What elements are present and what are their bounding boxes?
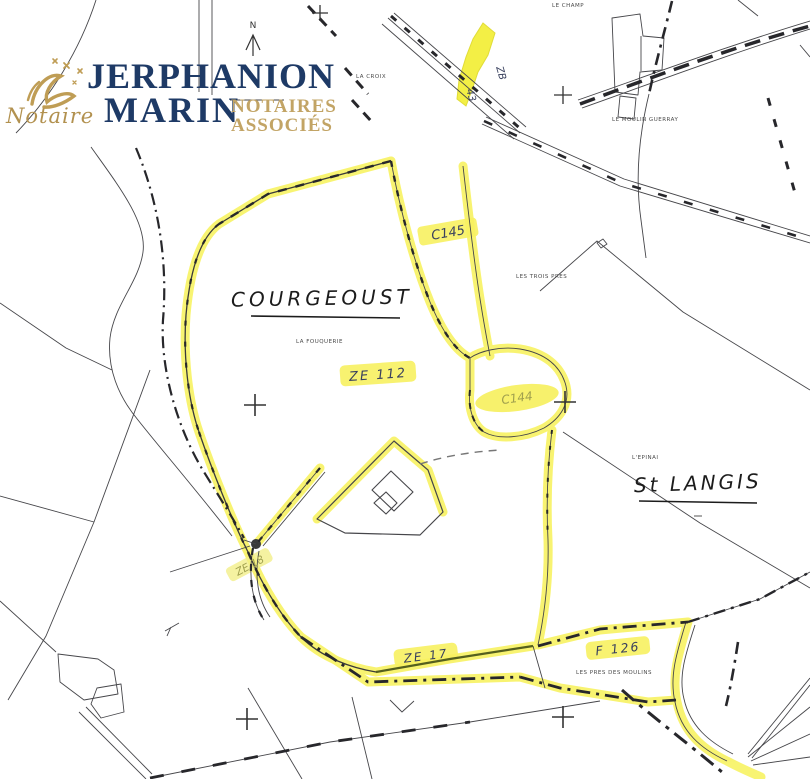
label-highlights bbox=[225, 217, 651, 668]
st-langis-underline bbox=[639, 501, 757, 503]
place-name-st-langis: St LANGIS bbox=[633, 469, 762, 497]
cadastral-map: N COURGEOUST St LANGIS ZB 43 C145 ZE 112… bbox=[0, 0, 810, 779]
north-label: N bbox=[250, 21, 257, 31]
lieu-dit-l-epinai: L'EPINAI bbox=[632, 455, 659, 461]
lieu-dit-les-pres: LES PRES DES MOULINS bbox=[576, 670, 652, 676]
lieu-dit-la-fouquerie: LA FOUQUERIE bbox=[296, 339, 343, 345]
place-name-courgeoust: COURGEOUST bbox=[231, 284, 413, 311]
lieu-dit-le-champ: LE CHAMP bbox=[552, 3, 584, 9]
north-arrow: N bbox=[246, 21, 260, 56]
parcel-label-zb: ZB bbox=[493, 64, 508, 81]
map-labels: COURGEOUST St LANGIS ZB 43 C145 ZE 112 C… bbox=[231, 3, 762, 676]
cadastral-map-page: N COURGEOUST St LANGIS ZB 43 C145 ZE 112… bbox=[0, 0, 810, 779]
lieu-dit-la-croix: LA CROIX bbox=[356, 74, 386, 80]
lieu-dit-le-moulin: LE MOULIN GUERRAY bbox=[612, 117, 678, 123]
highlighted-property-boundary bbox=[185, 161, 761, 777]
courgeoust-underline bbox=[251, 316, 400, 318]
lieu-dit-les-trois: LES TROIS PRES bbox=[516, 274, 567, 280]
